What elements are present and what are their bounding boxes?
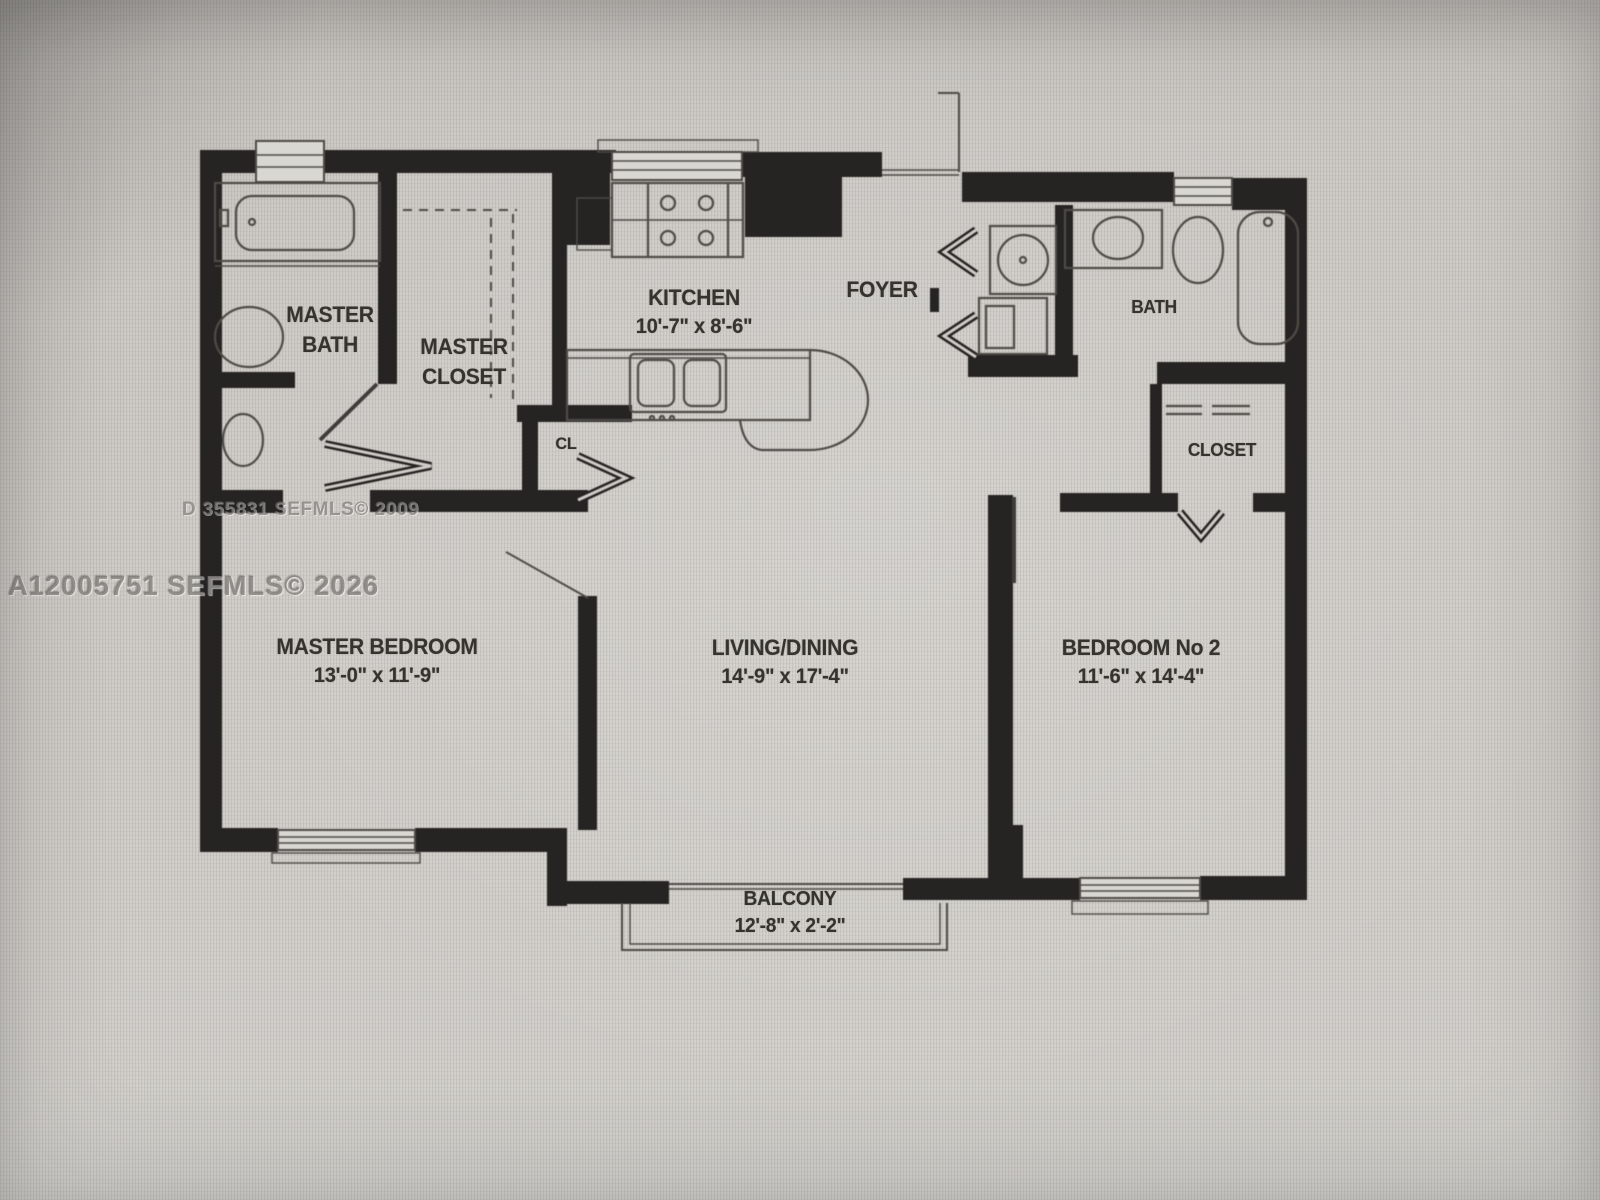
plan-credit-watermark: D 355831 SEFMLS© 2009 [182,499,419,521]
floor-plan-photo: MASTER BATH MASTER CLOSET KITCHEN 10'-7"… [0,0,1600,1200]
room-label-master-bedroom: MASTER BEDROOM 13'-0" x 11'-9" [276,632,477,690]
bath2-sink-icon [1065,210,1162,268]
master-bathtub-icon [215,183,380,266]
mls-watermark: A12005751 SEFMLS© 2026 [8,570,379,602]
room-label-balcony: BALCONY 12'-8" x 2'-2" [735,886,846,940]
master-suite-door-arrow [325,444,431,488]
room-label-master-closet: MASTER CLOSET [420,332,507,392]
master-sink-icon [223,414,263,466]
wd-closet-bifold-doors [944,230,976,357]
master-toilet-icon [215,307,283,367]
closet2-door-arrow [1180,512,1222,537]
room-label-foyer: FOYER [846,275,917,305]
cl-closet-door-arrow [578,456,626,500]
room-label-master-bath: MASTER BATH [286,300,373,360]
interior-walls [202,165,1307,885]
room-label-bath: BATH [1131,296,1177,318]
living-door-swing [506,552,588,598]
room-label-kitchen: KITCHEN 10'-7" x 8'-6" [636,283,753,341]
room-label-bedroom-2: BEDROOM No 2 11'-6" x 14'-4" [1062,633,1220,691]
entry-threshold [882,93,959,175]
washer-icon [990,226,1056,294]
room-label-living-dining: LIVING/DINING 14'-9" x 17'-4" [712,633,858,691]
bath2-toilet-icon [1173,217,1223,283]
room-label-closet: CLOSET [1188,439,1256,461]
kitchen-island-sink-icon [567,350,868,450]
dryer-icon [979,298,1047,354]
closet2-shelves [1166,406,1250,414]
room-label-cl: CL [555,433,576,455]
master-bath-door-leaf [320,384,377,440]
exterior-walls [200,150,1307,906]
